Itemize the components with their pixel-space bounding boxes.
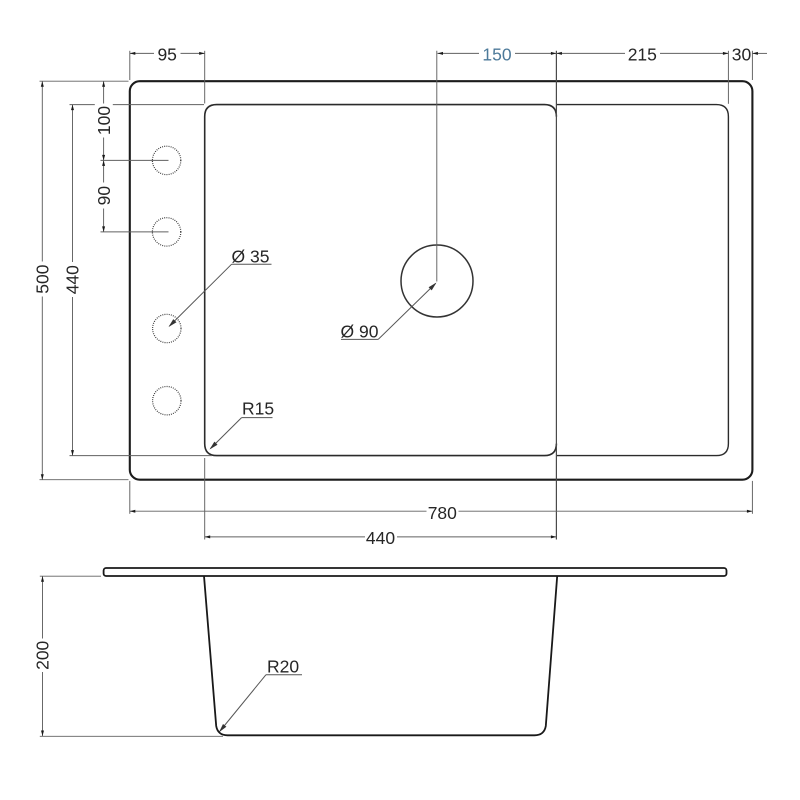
svg-text:30: 30 [732,45,752,65]
svg-text:Ø 90: Ø 90 [341,322,379,342]
svg-text:440: 440 [366,528,395,548]
svg-text:Ø 35: Ø 35 [232,247,270,267]
svg-text:150: 150 [482,45,511,65]
svg-text:215: 215 [628,45,657,65]
svg-text:R20: R20 [267,657,299,677]
svg-text:500: 500 [33,264,53,293]
svg-text:200: 200 [33,640,53,669]
svg-text:780: 780 [428,503,457,523]
svg-text:440: 440 [63,265,83,294]
svg-text:100: 100 [94,106,114,135]
svg-text:R15: R15 [242,399,274,419]
svg-text:95: 95 [157,45,176,65]
svg-text:90: 90 [94,186,114,206]
